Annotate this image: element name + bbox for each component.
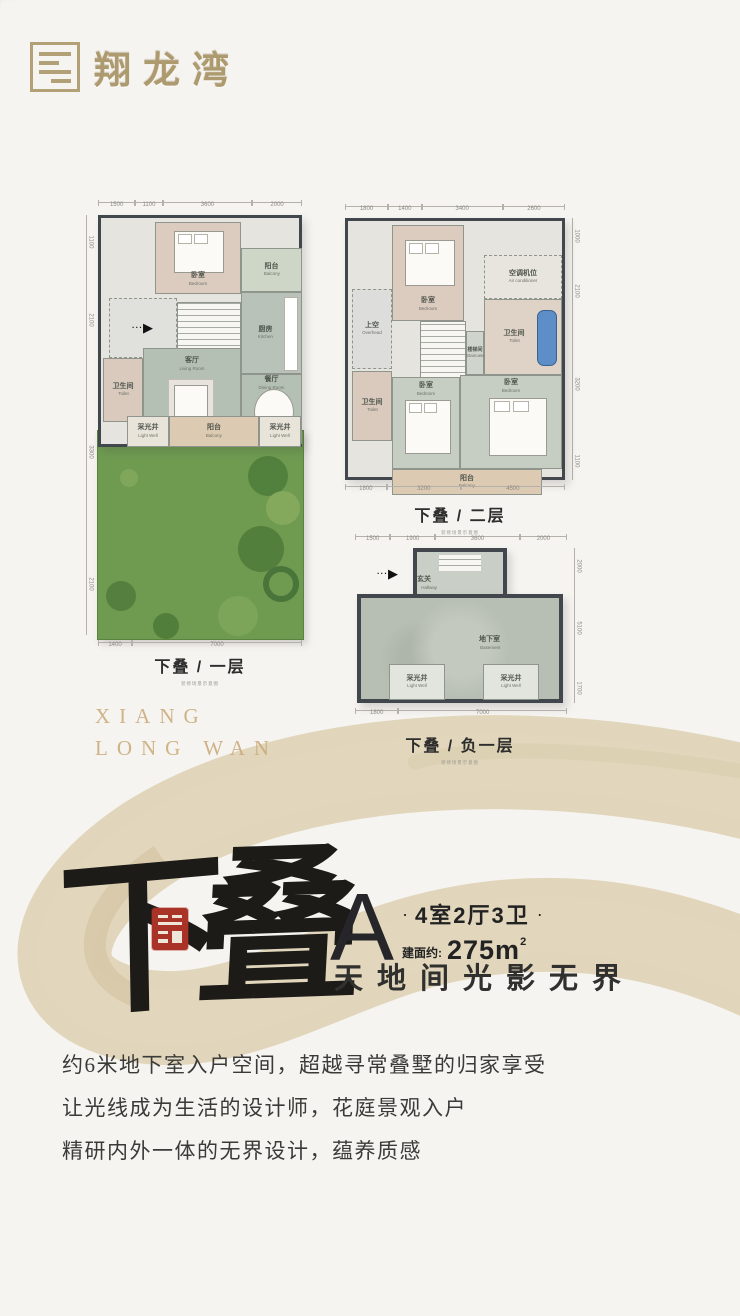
plan2-room-staircase: 楼梯间Staircase bbox=[466, 331, 484, 375]
plan1-caption: 下叠 / 一层装修场景示意图 bbox=[130, 653, 270, 687]
bathtub bbox=[537, 310, 557, 366]
plan1-dims-top: 15001100 36002000 bbox=[98, 202, 302, 210]
description: 约6米地下室入户空间，超越寻常叠墅的归家享受 让光线成为生活的设计师，花庭景观入… bbox=[62, 1044, 547, 1173]
plan3-dims-bottom: 18007000 bbox=[355, 710, 567, 718]
poster: 翔龙湾 15001100 36002000 11002100 33002100 … bbox=[0, 0, 740, 1316]
plan2-room-bedroom-left: 卧室Bedroom bbox=[392, 377, 460, 469]
plan1-room-kitchen: 厨房Kitchen bbox=[241, 292, 302, 374]
plan2-room-toilet-right: 卫生间Toilet bbox=[484, 299, 562, 375]
brand-logo-icon bbox=[30, 42, 80, 92]
floor-plan-level1: 卧室Bedroom 阳台Balcony 厨房Kitchen ···▶ 卫生间To… bbox=[98, 215, 302, 447]
plan2-dims-right: 10002100 32001100 bbox=[572, 218, 580, 480]
brand-name: 翔龙湾 bbox=[94, 40, 241, 94]
plan2-room-bedroom-right: 卧室Bedroom bbox=[460, 375, 562, 469]
plan1-dims-bottom: 14007000 bbox=[98, 642, 302, 650]
slogan: 天地间光影无界 bbox=[334, 955, 635, 997]
plan3-entry-block: 玄关Hallway bbox=[413, 548, 507, 598]
plan3-room-lightwell-left: 采光井Light Well bbox=[389, 664, 445, 700]
plan3-basement-room: 地下室Basement 采光井Light Well 采光井Light Well bbox=[357, 594, 563, 703]
basement-entry-arrow-icon: ···▶ bbox=[377, 566, 399, 582]
description-line-2: 让光线成为生活的设计师，花庭景观入户 bbox=[62, 1087, 547, 1130]
plan1-room-bedroom: 卧室Bedroom bbox=[155, 222, 241, 294]
plan1-room-balcony-top: 阳台Balcony bbox=[241, 248, 302, 292]
plan2-room-ac: 空调机位Air conditioner bbox=[484, 255, 562, 299]
dot-separator-left: · bbox=[402, 905, 408, 923]
entry-arrow-icon: ···▶ bbox=[132, 320, 154, 336]
seal-stamp bbox=[152, 908, 188, 950]
plan3-room-lightwell-right: 采光井Light Well bbox=[483, 664, 539, 700]
plan2-room-bedroom-top: 卧室Bedroom bbox=[392, 225, 464, 321]
plan3-caption: 下叠 / 负一层装修场景示意图 bbox=[385, 732, 535, 766]
dot-separator-right: · bbox=[537, 905, 543, 923]
plan2-dims-top: 18001400 34002600 bbox=[345, 206, 565, 214]
plan3-dims-right: 20005100 1700 bbox=[574, 548, 582, 703]
plan2-stairs bbox=[420, 321, 466, 379]
plan1-room-balcony-bottom: 阳台Balcony bbox=[169, 416, 259, 447]
plan2-caption: 下叠 / 二层装修场景示意图 bbox=[390, 502, 530, 536]
plan2-room-toilet-left: 卫生间Toilet bbox=[352, 371, 392, 441]
floor-plan-basement: 玄关Hallway ···▶ 地下室Basement 采光井Light Well… bbox=[355, 548, 567, 703]
description-line-3: 精研内外一体的无界设计，蕴养质感 bbox=[62, 1130, 547, 1173]
description-line-1: 约6米地下室入户空间，超越寻常叠墅的归家享受 bbox=[62, 1044, 547, 1087]
brand-logo: 翔龙湾 bbox=[30, 40, 241, 94]
brand-name-english: XIANG LONG WAN bbox=[95, 700, 278, 764]
floor-plan-level2: 卧室Bedroom 空调机位Air conditioner 卫生间Toilet … bbox=[345, 218, 565, 480]
garden bbox=[97, 430, 304, 640]
plan1-room-lightwell-right: 采光井Light Well bbox=[259, 416, 301, 447]
unit-layout: 4室2厅3卫 bbox=[415, 898, 530, 930]
plan1-dims-left: 11002100 33002100 bbox=[86, 215, 94, 635]
plan1-room-toilet: 卫生间Toilet bbox=[103, 358, 143, 422]
plan1-room-lightwell-left: 采光井Light Well bbox=[127, 416, 169, 447]
plan2-dims-bottom: 18003200 4500 bbox=[345, 486, 565, 494]
plan2-room-overhead: 上空Overhead bbox=[352, 289, 392, 369]
plan3-dims-top: 15001900 36002000 bbox=[355, 536, 567, 544]
